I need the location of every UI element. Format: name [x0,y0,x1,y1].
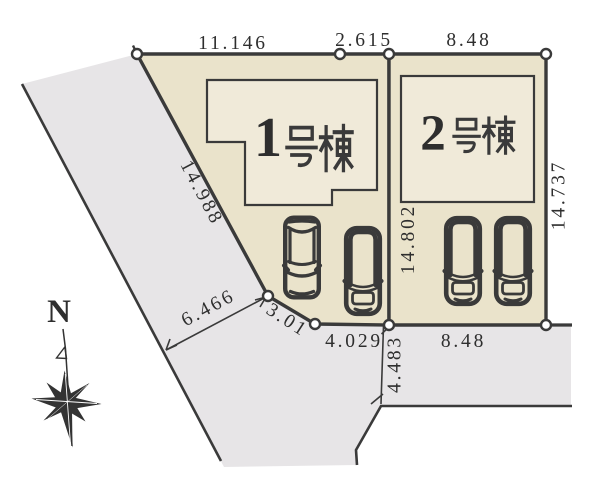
svg-text:4.029: 4.029 [325,331,383,352]
svg-text:2: 2 [420,106,446,162]
svg-text:14.737: 14.737 [549,160,570,230]
svg-text:N: N [47,294,71,330]
svg-text:1: 1 [254,107,282,169]
svg-text:11.146: 11.146 [198,33,268,54]
svg-text:4.483: 4.483 [385,335,406,393]
svg-text:2.615: 2.615 [335,30,393,51]
svg-text:8.48: 8.48 [446,30,491,51]
svg-text:8.48: 8.48 [441,331,486,352]
svg-text:14.802: 14.802 [398,204,419,274]
